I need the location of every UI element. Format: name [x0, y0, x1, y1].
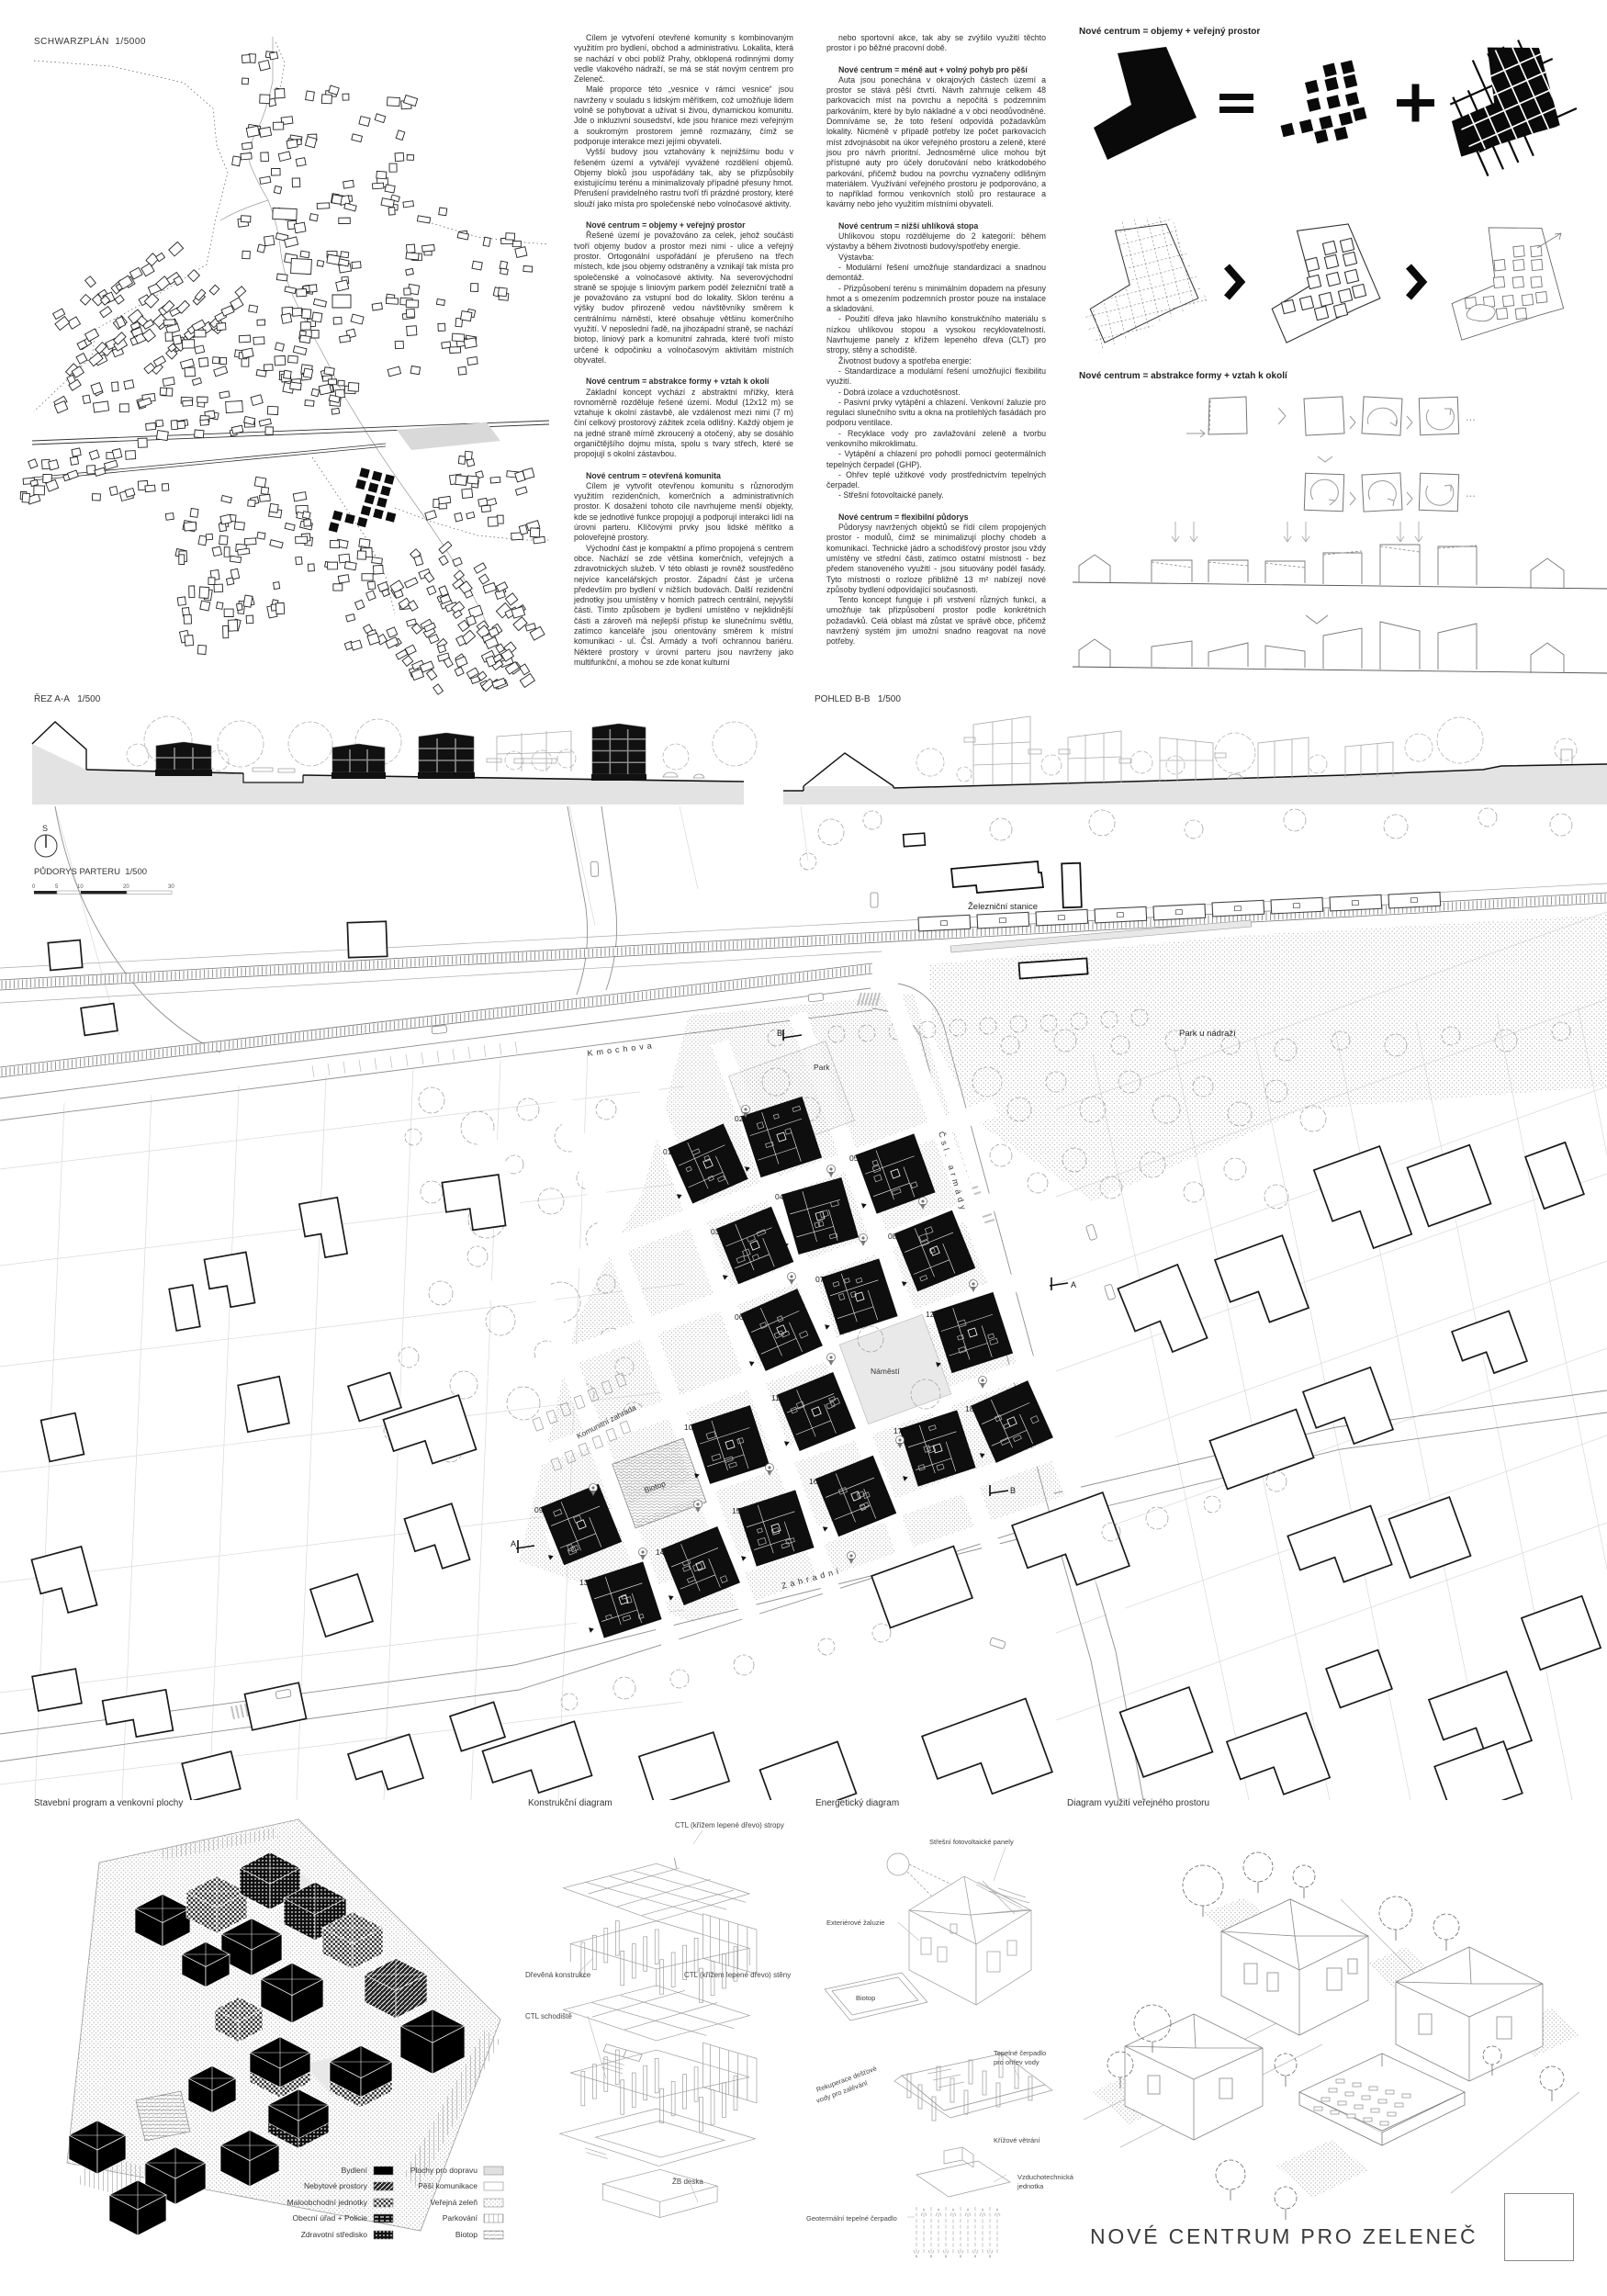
svg-text:01: 01	[663, 1147, 672, 1156]
svg-text:Diagram využití veřejného pros: Diagram využití veřejného prostoru	[1067, 1798, 1209, 1808]
svg-text:08: 08	[888, 1232, 897, 1241]
svg-text:Biotop: Biotop	[455, 2230, 478, 2239]
svg-text:Zdravotní středisko: Zdravotní středisko	[301, 2230, 368, 2239]
svg-text:20: 20	[123, 884, 129, 890]
svg-text:B: B	[1010, 1486, 1016, 1495]
svg-text:Železniční stanice: Železniční stanice	[968, 902, 1038, 912]
svg-text:ŘEZ A-A 1/500: ŘEZ A-A 1/500	[34, 692, 101, 704]
svg-text:POHLED B-B 1/500: POHLED B-B 1/500	[815, 694, 901, 704]
svg-text:07: 07	[815, 1275, 825, 1284]
svg-text:...: ...	[1466, 410, 1476, 423]
svg-text:CTL schodiště: CTL schodiště	[525, 2012, 572, 2020]
svg-text:jednotka: jednotka	[1017, 2182, 1044, 2190]
svg-text:Střešní fotovoltaické panely: Střešní fotovoltaické panely	[929, 1838, 1014, 1846]
svg-text:CTL (křížem lepené dřevo) stěn: CTL (křížem lepené dřevo) stěny	[684, 1971, 791, 1979]
svg-text:Veřejná zeleň: Veřejná zeleň	[430, 2198, 478, 2207]
svg-text:Bydlení: Bydlení	[342, 2166, 368, 2175]
svg-text:Nebytové prostory: Nebytové prostory	[304, 2181, 368, 2190]
svg-text:S: S	[42, 824, 48, 833]
svg-text:13: 13	[579, 1578, 589, 1587]
svg-text:CTL (křížem lepené dřevo) stro: CTL (křížem lepené dřevo) stropy	[675, 1821, 784, 1829]
svg-text:12: 12	[926, 1310, 935, 1319]
svg-text:02: 02	[735, 1114, 744, 1123]
svg-text:5: 5	[55, 884, 59, 890]
svg-text:Křížové větrání: Křížové větrání	[994, 2136, 1040, 2144]
svg-text:Geotermální tepelné čerpadlo: Geotermální tepelné čerpadlo	[806, 2214, 897, 2223]
svg-text:18: 18	[965, 1404, 974, 1413]
svg-text:Nové centrum = objemy + veřejn: Nové centrum = objemy + veřejný prostor	[1079, 27, 1260, 37]
svg-text:Park u nádraží: Park u nádraží	[1179, 1029, 1236, 1039]
svg-text:06: 06	[735, 1312, 744, 1322]
svg-text:Exteriérové žaluzie: Exteriérové žaluzie	[826, 1919, 884, 1927]
svg-text:ŽB deska: ŽB deska	[672, 2178, 703, 2186]
svg-text:30: 30	[168, 884, 174, 890]
svg-text:Tepelné čerpadlo: Tepelné čerpadlo	[994, 2049, 1046, 2057]
svg-text:Náměstí: Náměstí	[871, 1367, 900, 1376]
svg-text:Dřevěná konstrukce: Dřevěná konstrukce	[525, 1971, 591, 1979]
svg-text:Energetický diagram: Energetický diagram	[815, 1798, 899, 1808]
svg-text:Kmochova: Kmochova	[587, 1041, 656, 1058]
svg-text:...: ...	[1466, 486, 1476, 500]
svg-text:Konstrukční diagram: Konstrukční diagram	[528, 1798, 612, 1808]
svg-text:Parkování: Parkování	[443, 2213, 478, 2223]
svg-text:Biotop: Biotop	[856, 1994, 875, 2002]
svg-text:PŮDORYS PARTERU 1/500: PŮDORYS PARTERU 1/500	[34, 866, 147, 877]
svg-text:Park: Park	[814, 1063, 830, 1072]
svg-text:16: 16	[809, 1477, 818, 1486]
svg-text:14: 14	[656, 1548, 665, 1557]
svg-text:A: A	[511, 1539, 516, 1548]
svg-text:04: 04	[775, 1192, 784, 1201]
svg-text:Stavební program a venkovní pl: Stavební program a venkovní plochy	[34, 1798, 183, 1808]
svg-text:03: 03	[711, 1227, 720, 1236]
svg-text:10: 10	[77, 884, 84, 890]
svg-text:09: 09	[534, 1505, 544, 1514]
svg-text:B: B	[777, 1029, 782, 1038]
svg-text:10: 10	[684, 1423, 693, 1432]
svg-text:Obecní úřad + Policie: Obecní úřad + Policie	[292, 2213, 367, 2223]
svg-text:A: A	[1071, 1280, 1076, 1289]
svg-text:Maloobchodní jednotky: Maloobchodní jednotky	[287, 2198, 368, 2207]
svg-text:pro ohřev vody: pro ohřev vody	[994, 2058, 1039, 2066]
svg-text:Pěší komunikace: Pěší komunikace	[418, 2181, 478, 2190]
svg-text:Plochy pro dopravu: Plochy pro dopravu	[410, 2166, 478, 2175]
svg-text:17: 17	[893, 1426, 903, 1435]
svg-text:05: 05	[849, 1154, 859, 1163]
svg-text:Nové centrum = abstrakce formy: Nové centrum = abstrakce formy + vztah k…	[1079, 371, 1288, 381]
svg-text:11: 11	[771, 1393, 780, 1402]
svg-text:0: 0	[32, 884, 36, 890]
svg-text:15: 15	[732, 1506, 741, 1515]
